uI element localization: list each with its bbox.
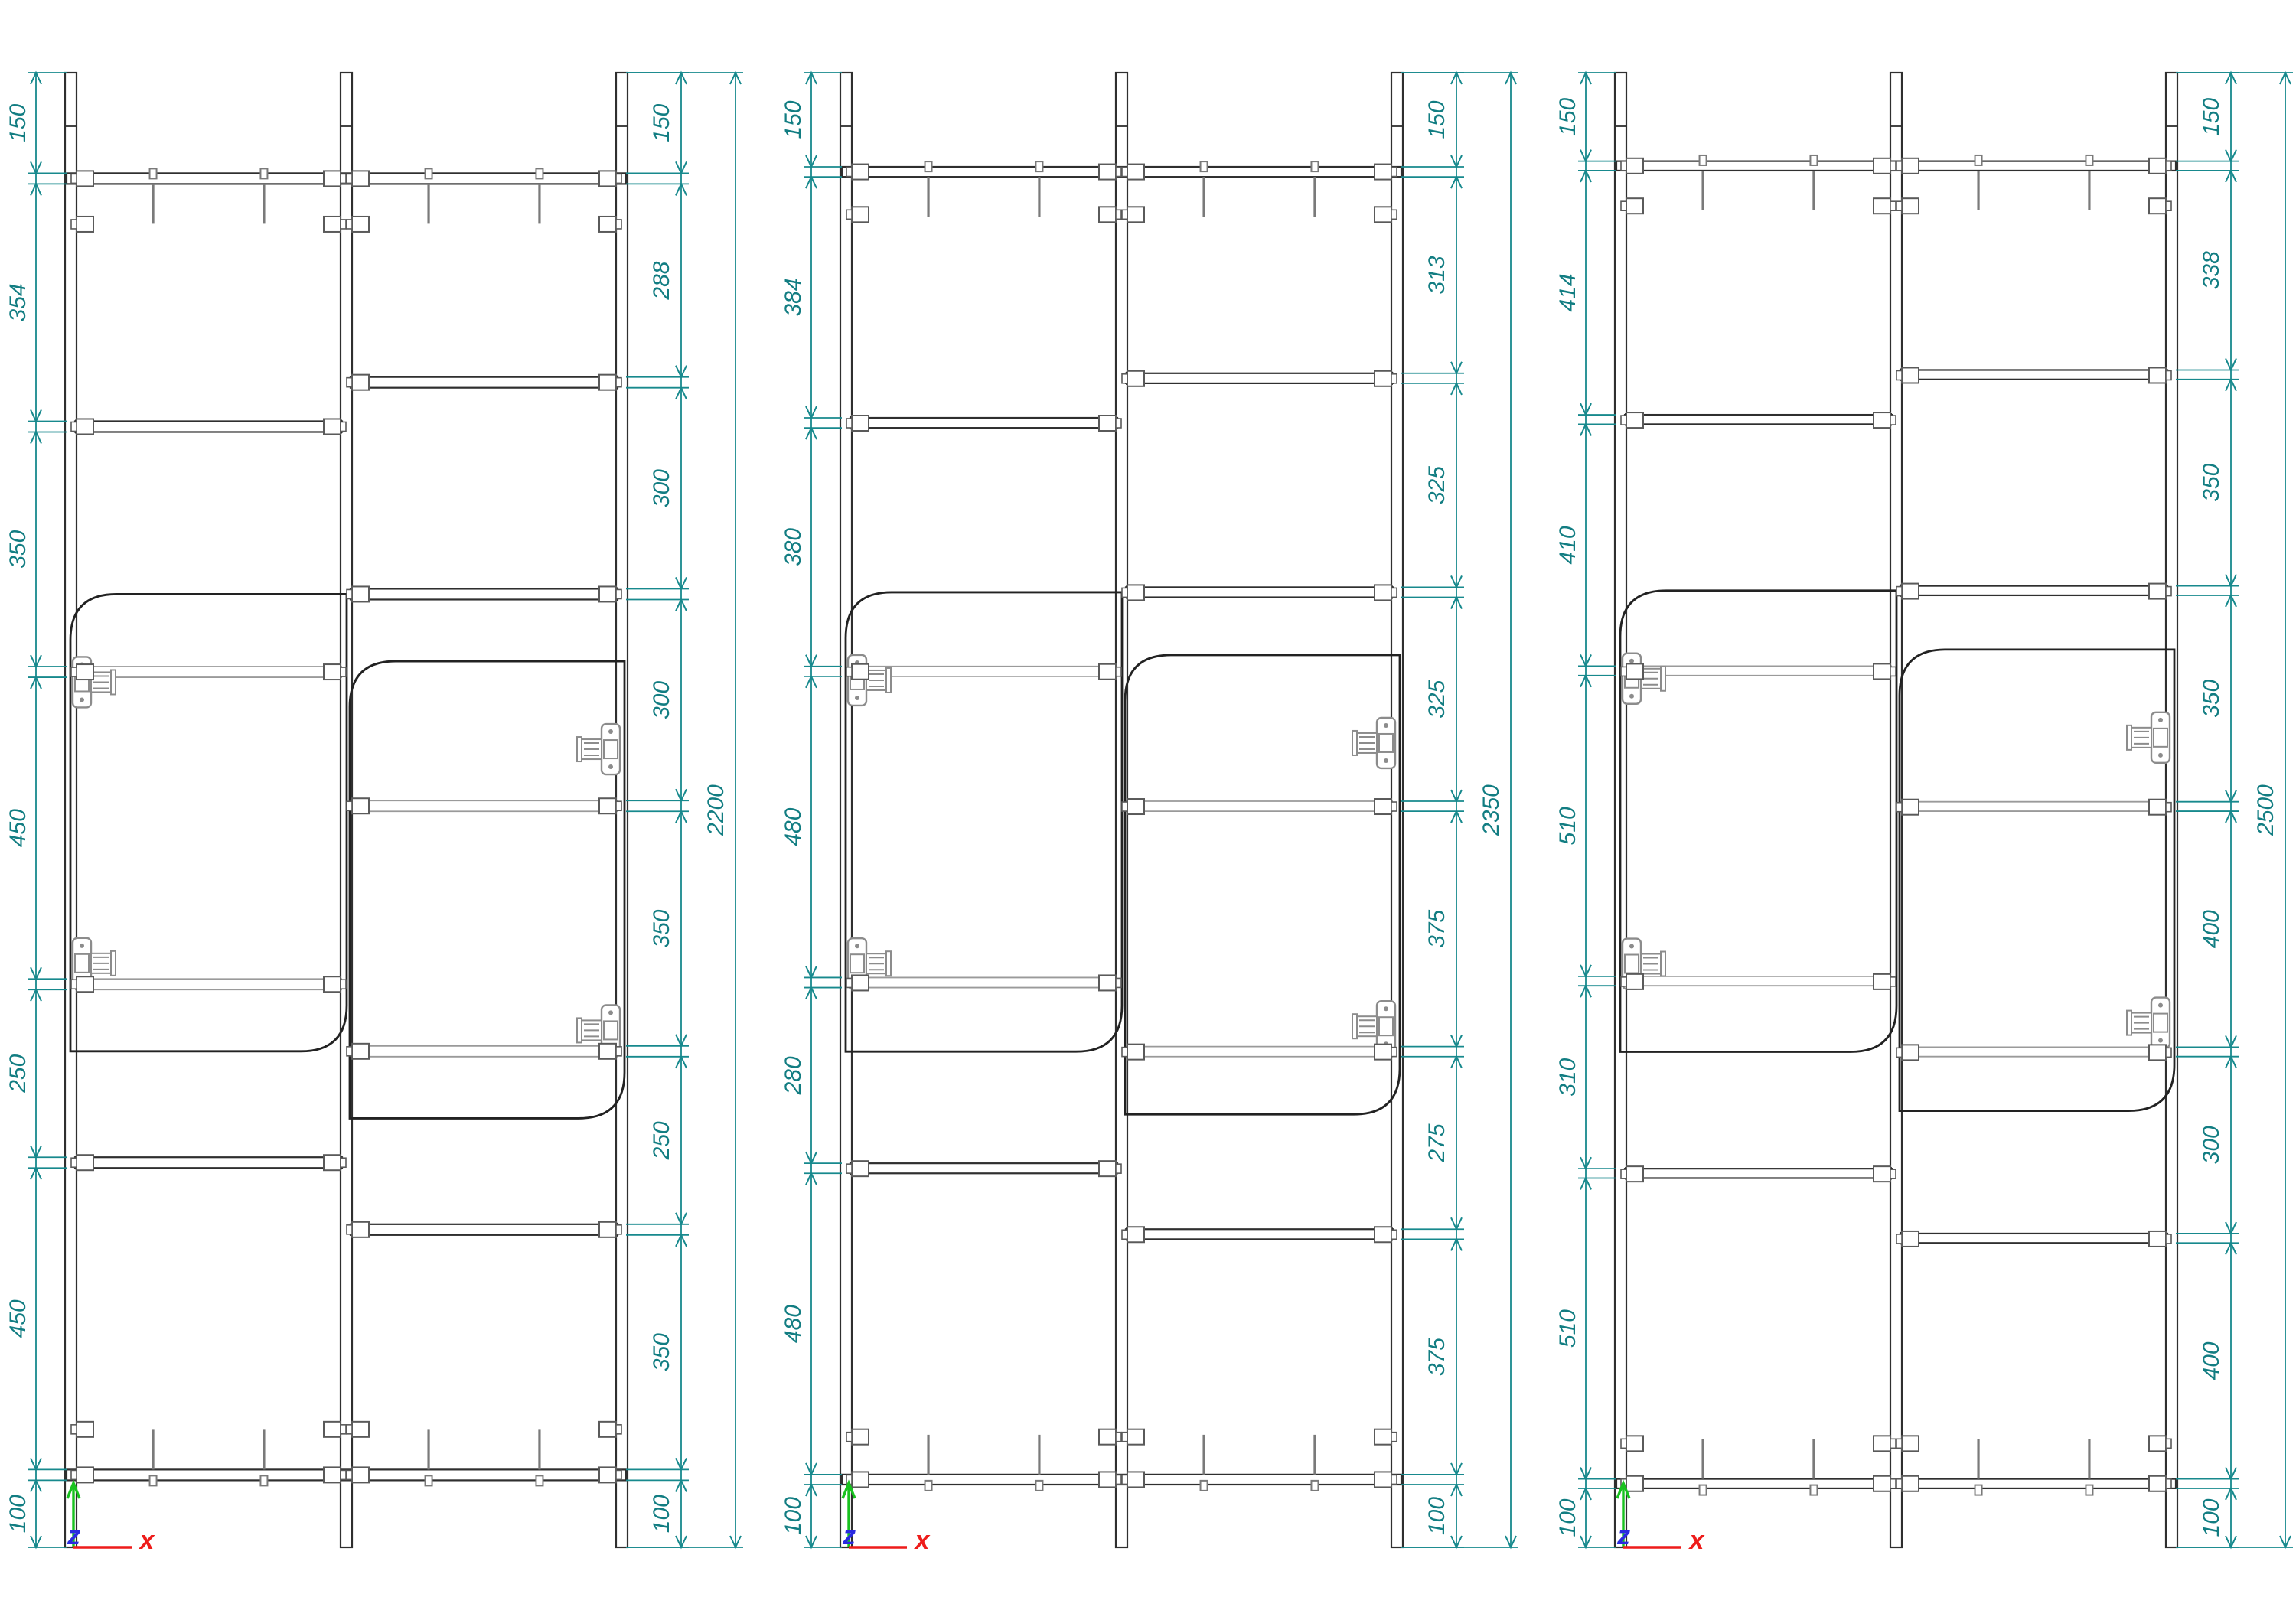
dowel-peg-icon — [536, 1429, 543, 1485]
dim-label: 325 — [1424, 466, 1450, 504]
dowel-peg-icon — [2086, 155, 2092, 210]
dowel-peg-icon — [1311, 1435, 1318, 1491]
dim-label: 350 — [649, 909, 674, 947]
dim-label: 150 — [5, 103, 31, 142]
dowel-peg-icon — [1810, 155, 1817, 210]
dim-label: 450 — [5, 1299, 31, 1338]
dim-label: 350 — [649, 1333, 674, 1371]
dowel-peg-icon — [1810, 1439, 1817, 1495]
dowel-peg-icon — [1975, 1439, 1982, 1495]
shelf-left-bay — [1625, 1167, 1892, 1179]
hinge-icon — [1352, 718, 1395, 768]
axis-label-x: x — [1688, 1526, 1706, 1555]
dim-label: 350 — [2199, 463, 2224, 501]
overall-dimension: 2350 — [1401, 73, 1518, 1547]
hidden-shelf-left-bay — [850, 977, 1117, 987]
dim-label: 354 — [5, 283, 31, 321]
left-door — [1620, 591, 1896, 1052]
ucs-origin-icon: xz — [1616, 1483, 1706, 1555]
dowel-peg-icon — [925, 1435, 932, 1491]
dowel-peg-icon — [536, 168, 543, 223]
shelf-left-bay — [75, 419, 342, 433]
dim-label: 410 — [1555, 526, 1580, 564]
dowel-peg-icon — [1975, 155, 1982, 210]
ucs-origin-icon: xz — [842, 1483, 931, 1555]
axis-label-z: z — [1616, 1521, 1630, 1550]
dim-label: 510 — [1555, 807, 1580, 845]
dim-label: 480 — [781, 807, 806, 846]
dim-label: 510 — [1555, 1309, 1580, 1348]
dim-label: 150 — [1555, 97, 1580, 135]
dim-label: 300 — [649, 469, 674, 507]
dowel-peg-icon — [1311, 161, 1318, 217]
right-bay-dimensions: 150338350350400300400100 — [2176, 73, 2239, 1547]
left-bay-dimensions: 150414410510310510100 — [1555, 73, 1616, 1547]
hinge-icon — [2127, 712, 2170, 763]
axis-x-arrow: x — [73, 1526, 156, 1555]
overall-dim-label: 2350 — [1479, 784, 1504, 836]
overall-dimension: 2200 — [626, 73, 743, 1547]
drawing-elevation-2500: 1504144105103105101001503383503504003004… — [1555, 73, 2293, 1555]
dowel-peg-icon — [426, 1429, 432, 1485]
left-bay-dimensions: 150384380480280480100 — [781, 73, 842, 1547]
left-door — [846, 592, 1122, 1051]
dim-label: 375 — [1424, 1338, 1450, 1376]
dim-label: 100 — [649, 1495, 674, 1533]
dim-label: 300 — [649, 681, 674, 719]
axis-label-x: x — [139, 1526, 156, 1555]
hidden-shelf-right-bay — [1900, 802, 2167, 811]
shelf-right-bay — [1900, 585, 2167, 597]
shelf-left-bay — [75, 1156, 342, 1169]
elevation-drawings-svg: 1503543504502504501001502883003003502503… — [0, 0, 2296, 1607]
right-bay-dimensions: 150313325325375275375100 — [1401, 73, 1464, 1547]
dim-label: 100 — [1555, 1498, 1580, 1537]
dowel-peg-icon — [2086, 1439, 2092, 1495]
shelf-right-bay — [1126, 585, 1393, 598]
dim-label: 338 — [2199, 251, 2224, 289]
dim-label: 380 — [781, 528, 806, 566]
dim-label: 250 — [649, 1121, 674, 1160]
shelf-right-bay — [351, 376, 618, 390]
axis-x-arrow: x — [849, 1526, 931, 1555]
hidden-shelf-right-bay — [351, 800, 618, 811]
shelf-right-bay — [1900, 1232, 2167, 1244]
dim-label: 384 — [781, 279, 806, 317]
shelf-right-bay — [1126, 1227, 1393, 1240]
dowel-peg-icon — [150, 168, 157, 223]
dim-label: 400 — [2199, 1341, 2224, 1380]
shelf-left-bay — [850, 1162, 1117, 1175]
dowel-peg-icon — [925, 161, 932, 217]
dim-label: 150 — [781, 100, 806, 139]
hinge-icon — [848, 655, 891, 706]
shelf-left-bay — [1625, 413, 1892, 425]
dim-label: 480 — [781, 1305, 806, 1343]
drawing-elevation-2200: 1503543504502504501001502883003003502503… — [5, 73, 743, 1555]
hidden-shelf-right-bay — [1900, 1047, 2167, 1056]
dim-label: 250 — [5, 1054, 31, 1093]
axis-label-z: z — [67, 1521, 80, 1550]
shelf-right-bay — [1126, 372, 1393, 385]
dim-label: 100 — [1424, 1497, 1450, 1535]
dowel-peg-icon — [1201, 1435, 1208, 1491]
shelf-right-bay — [351, 1223, 618, 1237]
hidden-shelf-right-bay — [1126, 1047, 1393, 1057]
dim-label: 350 — [2199, 679, 2224, 717]
dim-label: 400 — [2199, 910, 2224, 948]
dim-label: 414 — [1555, 273, 1580, 311]
dim-label: 450 — [5, 809, 31, 847]
dim-label: 300 — [2199, 1126, 2224, 1164]
dowel-peg-icon — [426, 168, 432, 223]
right-door — [1125, 655, 1400, 1114]
dowel-peg-icon — [1700, 155, 1707, 210]
right-door — [350, 661, 625, 1118]
ucs-origin-icon: xz — [67, 1483, 156, 1555]
left-door — [70, 594, 347, 1051]
drawing-elevation-2350: 1503843804802804801001503133253253752753… — [781, 73, 1518, 1555]
shelf-left-bay — [850, 416, 1117, 429]
dim-label: 150 — [649, 103, 674, 142]
hidden-shelf-right-bay — [1126, 801, 1393, 811]
dim-label: 288 — [649, 261, 674, 300]
hinge-icon — [2127, 998, 2170, 1048]
dowel-peg-icon — [260, 168, 267, 223]
dim-label: 375 — [1424, 910, 1450, 948]
dowel-peg-icon — [1700, 1439, 1707, 1495]
dowel-peg-icon — [260, 1429, 267, 1485]
dim-label: 150 — [2199, 97, 2224, 135]
dim-label: 280 — [781, 1056, 806, 1095]
axis-x-arrow: x — [1623, 1526, 1706, 1555]
hidden-shelf-left-bay — [1625, 976, 1892, 986]
dim-label: 310 — [1555, 1058, 1580, 1096]
dim-label: 100 — [781, 1497, 806, 1535]
dim-label: 150 — [1424, 100, 1450, 139]
dim-label: 350 — [5, 530, 31, 568]
left-bay-dimensions: 150354350450250450100 — [5, 73, 67, 1547]
overall-dimension: 2500 — [2176, 73, 2293, 1547]
hidden-shelf-left-bay — [75, 979, 342, 989]
right-door — [1900, 650, 2174, 1111]
dowel-peg-icon — [1035, 1435, 1042, 1491]
dim-label: 275 — [1424, 1123, 1450, 1162]
axis-label-z: z — [842, 1521, 856, 1550]
shelf-right-bay — [351, 587, 618, 601]
hidden-shelf-right-bay — [351, 1046, 618, 1057]
hinge-icon — [577, 724, 620, 774]
shelf-right-bay — [1900, 368, 2167, 380]
cad-viewport: 1503543504502504501001502883003003502503… — [0, 0, 2296, 1607]
dowel-peg-icon — [150, 1429, 157, 1485]
right-bay-dimensions: 150288300300350250350100 — [626, 73, 689, 1547]
dim-label: 100 — [2199, 1498, 2224, 1537]
overall-dim-label: 2200 — [703, 784, 729, 836]
dim-label: 313 — [1424, 256, 1450, 294]
dowel-peg-icon — [1035, 161, 1042, 217]
dim-label: 325 — [1424, 680, 1450, 718]
overall-dim-label: 2500 — [2253, 784, 2278, 836]
dowel-peg-icon — [1201, 161, 1208, 217]
axis-label-x: x — [914, 1526, 931, 1555]
dim-label: 100 — [5, 1495, 31, 1533]
